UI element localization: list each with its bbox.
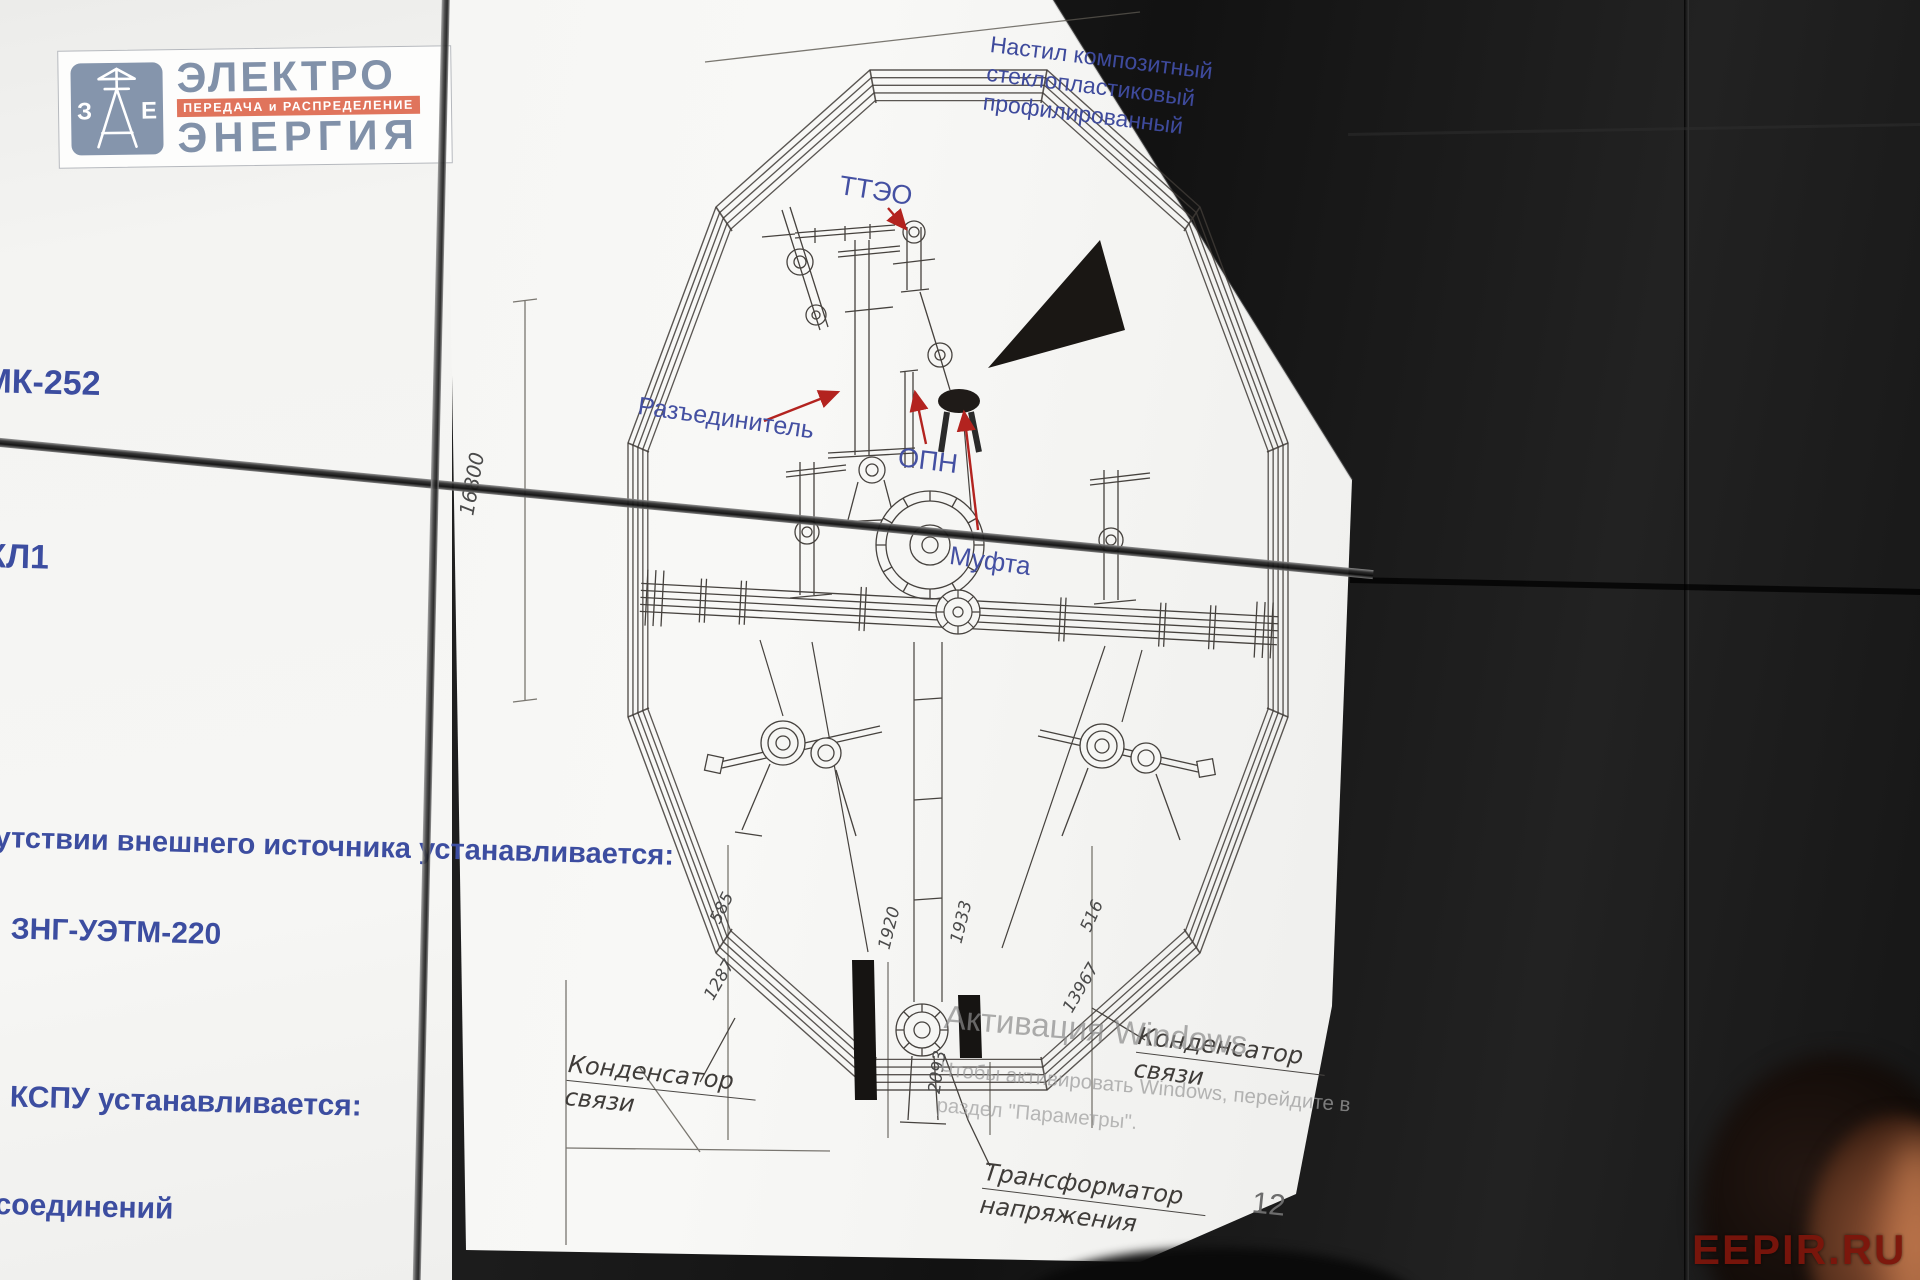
center-supports xyxy=(760,640,1142,1002)
logo-letter-right: Е xyxy=(141,97,157,124)
logo-word-bottom: ЭНЕРГИЯ xyxy=(177,115,420,158)
left-column xyxy=(786,462,846,598)
site-watermark: EEPIR.RU xyxy=(1692,1226,1906,1274)
slide-page-number: 12 xyxy=(1250,1186,1287,1223)
right-column xyxy=(1090,470,1150,604)
insulator-device xyxy=(782,207,828,330)
logo-pylon-icon: З Е xyxy=(70,62,163,155)
disconnector-column xyxy=(828,240,918,522)
cluster-left xyxy=(705,721,882,836)
company-logo: З Е ЭЛЕКТРО ПЕРЕДАЧА и РАСПРЕДЕЛЕНИЕ ЭНЕ… xyxy=(57,45,453,168)
cable-coupling xyxy=(920,292,980,520)
left-text-connections: соединений xyxy=(0,1188,174,1227)
logo-wordmark: ЭЛЕКТРО ПЕРЕДАЧА и РАСПРЕДЕЛЕНИЕ ЭНЕРГИЯ xyxy=(176,55,420,158)
photo-of-video-wall: З Е ЭЛЕКТРО ПЕРЕДАЧА и РАСПРЕДЕЛЕНИЕ ЭНЕ… xyxy=(0,0,1920,1280)
capacitor-left-line2: связи xyxy=(563,1083,636,1118)
left-text-mk252: МК-252 xyxy=(0,362,101,404)
logo-letter-left: З xyxy=(77,98,92,125)
bus-flange xyxy=(936,590,980,634)
cluster-right xyxy=(1038,724,1215,840)
left-text-kl1: КЛ1 xyxy=(0,537,50,578)
decking-section-wedge xyxy=(988,240,1125,368)
logo-word-top: ЭЛЕКТРО xyxy=(176,55,419,98)
left-text-zng: ; ЗНГ-УЭТМ-220 xyxy=(0,912,222,952)
